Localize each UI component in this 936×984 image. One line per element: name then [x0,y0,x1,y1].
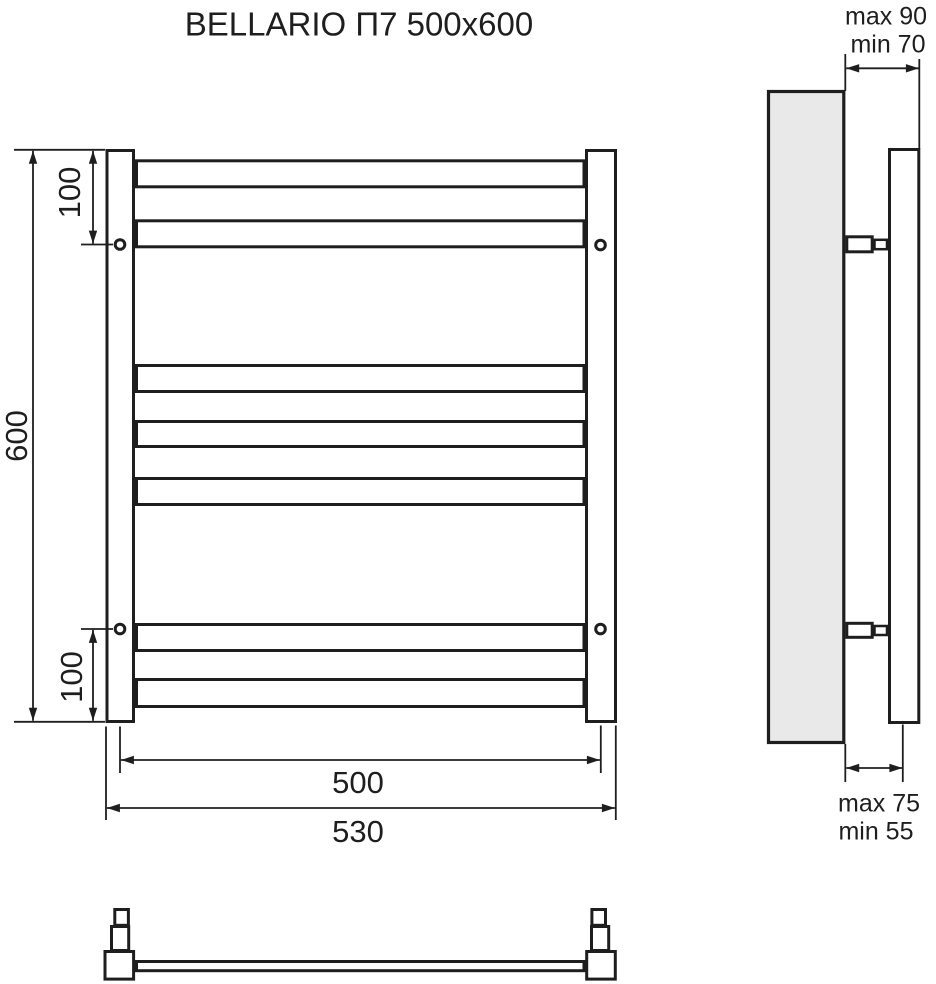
dim-label-500: 500 [332,765,384,800]
bar-5 [137,479,585,505]
dim-label-clearance-bottom-max: max 75 [838,790,920,818]
arrowhead-left [846,764,859,772]
right-post-section [587,952,616,980]
arrowhead-left [846,64,859,72]
dim-label-530: 530 [332,814,384,849]
front-left-post [107,151,134,722]
bracket-top-stem [875,240,888,249]
dim-label-clearance-top-max: max 90 [845,3,927,31]
bar-6 [137,625,585,651]
dim-label-clearance-bottom-min: min 55 [838,818,913,846]
bottom-view [105,910,615,980]
bar-2 [137,221,585,247]
mount-hole-top-right [596,240,606,250]
bracket-top-base [847,237,872,252]
towel-rail-drawing: BELLARIO П7 500x600 600 100 [0,0,936,984]
side-view: max 90 min 70 max 75 min 55 [769,3,928,846]
bar-4 [137,422,585,447]
right-fitting-cap [592,910,606,926]
bar-7 [137,680,585,707]
wall-panel [769,92,844,743]
front-view [107,151,616,722]
arrowhead-up [89,630,97,643]
mount-hole-bottom-right [596,624,606,634]
right-fitting-stem [592,927,609,951]
bracket-bottom-base [847,623,872,637]
arrowhead-right [602,804,615,812]
arrowhead-down [29,708,37,721]
dim-label-clearance-top-min: min 70 [850,31,925,59]
left-fitting-cap [115,910,129,926]
bar-3 [137,366,585,392]
arrowhead-up [29,151,37,164]
left-post-section [105,952,134,980]
mount-hole-bottom-left [115,624,125,634]
tube-profile [137,962,585,971]
technical-drawing-page: BELLARIO П7 500x600 600 100 [0,0,936,984]
dim-label-100-bottom: 100 [54,651,89,703]
arrowhead-right [906,64,919,72]
dim-label-600: 600 [0,410,34,462]
bracket-bottom-stem [875,626,888,635]
arrowhead-left [121,756,134,764]
bar-1 [137,161,585,187]
side-rail-post [890,150,919,723]
left-fitting-stem [112,927,129,951]
front-right-post [587,151,616,722]
arrowhead-up [89,151,97,164]
arrowhead-right [587,756,600,764]
arrowhead-down [89,708,97,721]
mount-hole-top-left [115,240,125,250]
drawing-title: BELLARIO П7 500x600 [185,6,533,43]
dim-label-100-top: 100 [52,167,87,219]
arrowhead-left [107,804,120,812]
arrowhead-down [89,231,97,244]
arrowhead-right [889,764,902,772]
